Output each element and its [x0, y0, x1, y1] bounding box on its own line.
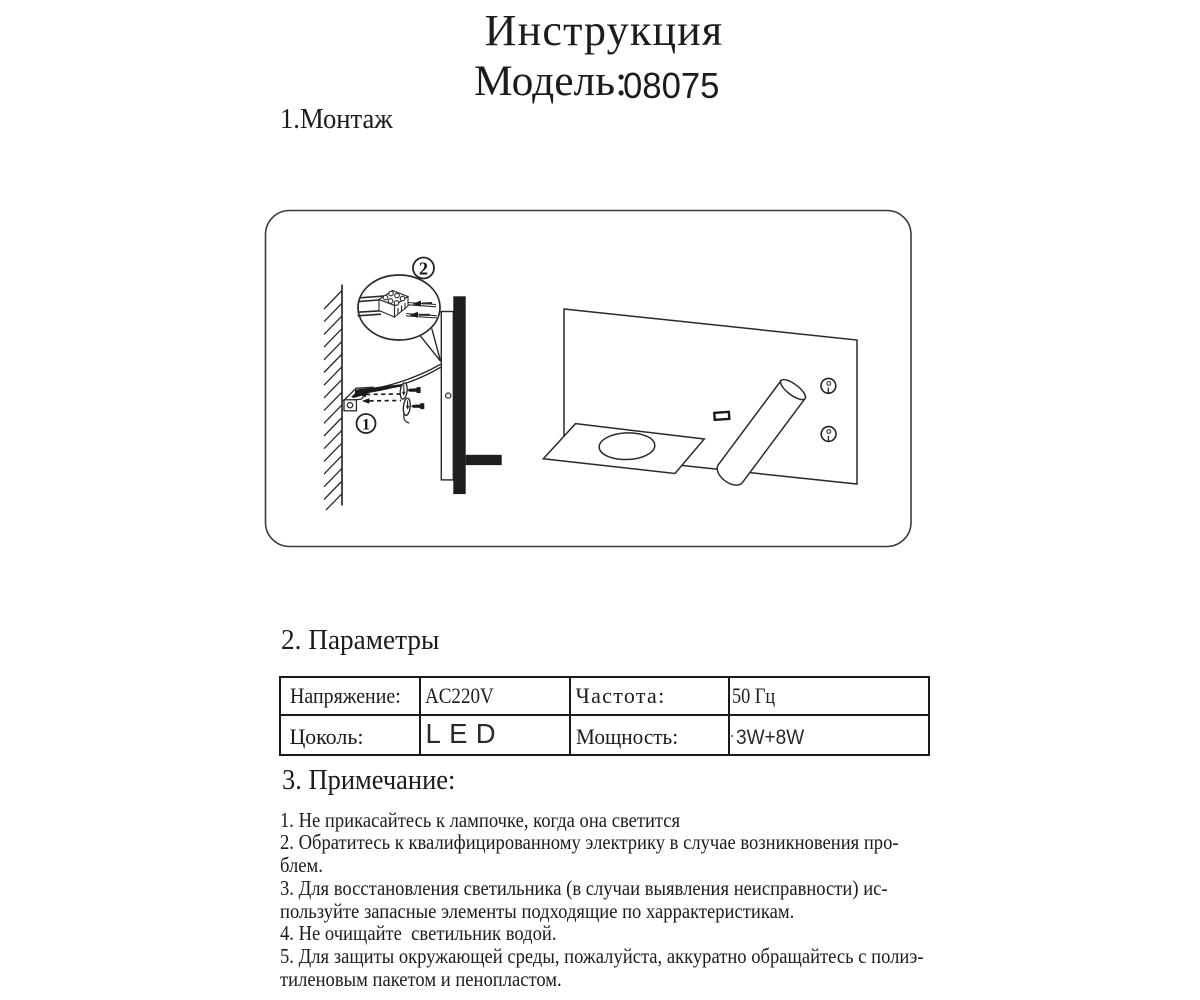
svg-text:1: 1	[362, 417, 370, 434]
svg-text:2: 2	[419, 259, 428, 279]
